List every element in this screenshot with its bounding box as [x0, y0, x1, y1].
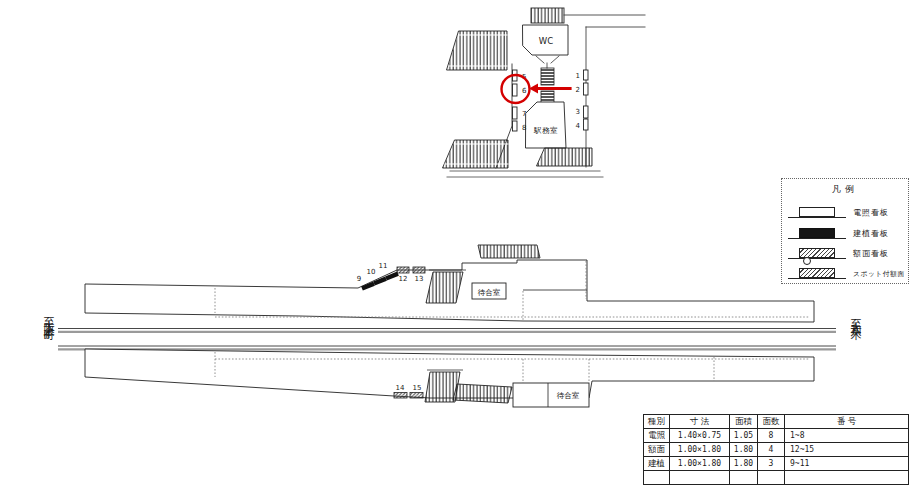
svg-text:13: 13 — [415, 275, 424, 283]
legend-item-panel-sign: 額面看板 — [788, 239, 902, 259]
track-line-1 — [58, 329, 836, 332]
waiting-room-lower: 待合室 — [513, 383, 589, 407]
svg-text:7: 7 — [522, 110, 526, 118]
svg-text:11: 11 — [379, 262, 388, 270]
legend-box: 凡例 電照看板 建植看板 額面看板 スポット付額面 — [781, 178, 909, 284]
lower-platform-stairs-h-icon — [453, 384, 512, 403]
svg-text:待合室: 待合室 — [557, 391, 580, 400]
legend-title: 凡例 — [788, 183, 902, 196]
sign-2: 2 — [576, 83, 588, 95]
svg-text:14: 14 — [396, 384, 405, 392]
svg-text:15: 15 — [413, 384, 422, 392]
wc-label: WC — [539, 36, 553, 46]
svg-text:8: 8 — [522, 124, 526, 132]
passage-stair-upper-icon — [541, 68, 554, 85]
sign-1: 1 — [576, 70, 588, 80]
station-sign-layout-drawing: WC 駅務室 5 6 7 8 — [0, 0, 919, 491]
waiting-room-upper: 待合室 — [472, 283, 506, 299]
station-office-room — [526, 102, 566, 148]
stairs-upper-left-icon — [447, 31, 507, 70]
stairs-lower-center-icon — [537, 148, 592, 166]
legend-item-standing-sign: 建植看板 — [788, 218, 902, 238]
panel-sign-icon — [788, 244, 846, 259]
landing-lines — [447, 171, 603, 177]
sign-15: 15 — [410, 384, 423, 398]
stairs-top-icon — [531, 8, 564, 23]
svg-text:6: 6 — [522, 87, 527, 95]
svg-text:12: 12 — [399, 275, 408, 283]
svg-text:4: 4 — [576, 122, 581, 130]
sign-7: 7 — [513, 107, 527, 119]
svg-text:3: 3 — [576, 108, 580, 116]
station-office-label: 駅務室 — [533, 126, 558, 135]
svg-text:2: 2 — [576, 86, 580, 94]
svg-text:1: 1 — [576, 72, 580, 80]
table-row: 電照 1.40×0.75 1.05 8 1~8 — [644, 429, 909, 443]
svg-text:10: 10 — [367, 268, 376, 276]
platform-plan-view: 待合室 9 10 11 12 13 — [58, 245, 836, 407]
table-row: 額面 1.00×1.80 1.80 4 12~15 — [644, 443, 909, 457]
table-row: 建植 1.00×1.80 1.80 3 9~11 — [644, 457, 909, 471]
sign-12: 12 — [397, 267, 409, 283]
passage-lines — [536, 56, 559, 68]
concourse-detail-view: WC 駅務室 5 6 7 8 — [443, 8, 645, 177]
svg-text:9: 9 — [357, 275, 361, 283]
sign-3: 3 — [576, 106, 588, 118]
spotlit-panel-sign-icon — [788, 264, 846, 279]
lit-sign-icon — [788, 203, 846, 218]
direction-label-left: 至大阪上本町 — [40, 308, 55, 323]
track-line-2 — [58, 346, 836, 349]
sign-13: 13 — [413, 267, 425, 283]
table-row — [644, 471, 909, 485]
overpass-stairs-icon — [478, 245, 540, 258]
sign-4: 4 — [576, 119, 588, 130]
sign-spec-table: 種別 寸 法 面積 面数 番 号 電照 1.40×0.75 1.05 8 1~8… — [643, 414, 909, 485]
direction-label-right: 至大和八木 — [847, 310, 862, 323]
upper-platform-stairs-icon — [426, 272, 463, 303]
table-header-row: 種別 寸 法 面積 面数 番 号 — [644, 415, 909, 429]
svg-text:待合室: 待合室 — [478, 288, 501, 297]
legend-item-spotlit-panel-sign: スポット付額面 — [788, 259, 902, 279]
sign-6: 6 — [513, 84, 528, 96]
sign-8: 8 — [513, 121, 527, 132]
standing-sign-icon — [788, 224, 846, 239]
legend-item-lit-sign: 電照看板 — [788, 198, 902, 218]
